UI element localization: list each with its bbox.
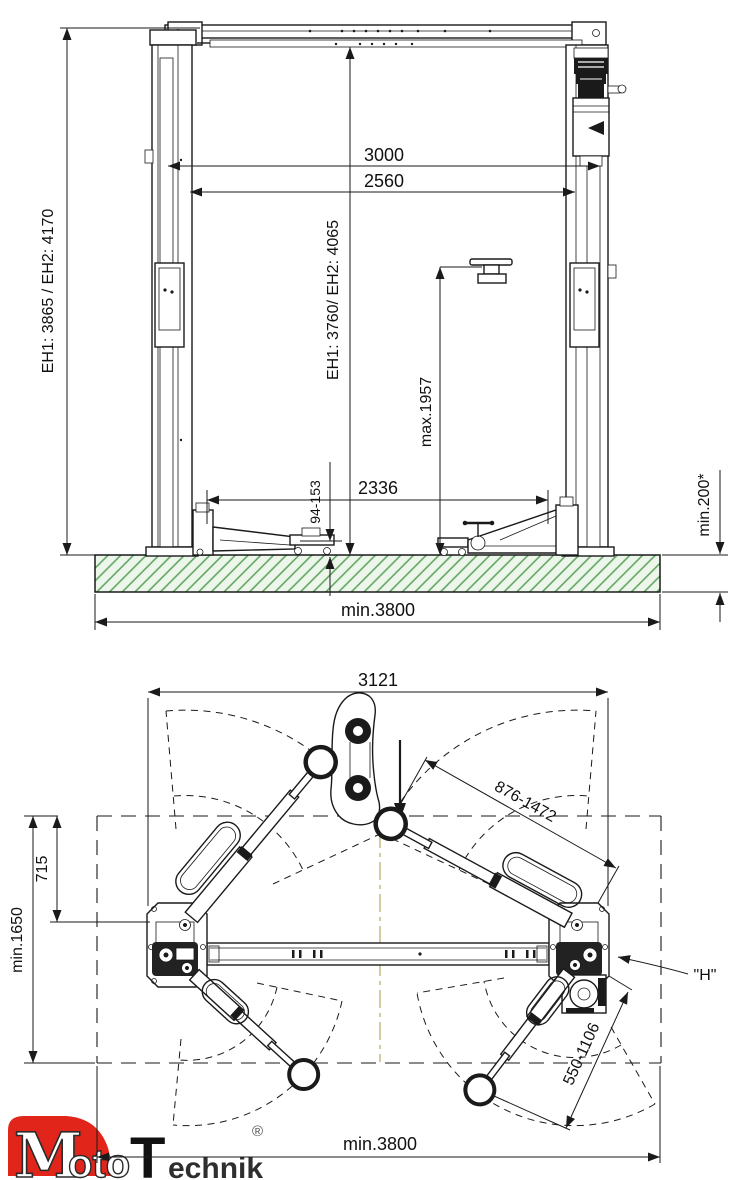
dim-short-arm-label: 550-1106 xyxy=(560,1020,603,1088)
logo-letter-t: T xyxy=(130,1126,165,1180)
dim-clear-height-label: EH1: 3760/ EH2: 4065 xyxy=(325,220,342,380)
lift-pad-adapter xyxy=(470,259,512,283)
detail-h-callout: "H" xyxy=(618,957,716,984)
dim-width-2336: 2336 xyxy=(207,478,548,524)
front-view: EH1: 3865 / EH2: 4170 EH1: 3760/ EH2: 40… xyxy=(40,22,728,630)
left-column xyxy=(145,30,198,556)
plan-view: 3121 876-1472 550-1106 715 min.1650 xyxy=(9,670,716,1130)
dim-715: 715 xyxy=(34,816,150,922)
dim-max-lift-height: max.1957 xyxy=(418,267,482,555)
dim-plan-bay-width-label: min.3800 xyxy=(343,1134,417,1154)
detail-h-label: "H" xyxy=(694,967,717,984)
logo-text-oto: oto xyxy=(68,1142,130,1180)
dim-3121: 3121 xyxy=(148,670,608,906)
hydraulic-power-unit xyxy=(573,48,626,166)
dim-pad-height-label: 94-153 xyxy=(307,480,323,524)
dim-width-2560: 2560 xyxy=(190,171,575,192)
floor-crossbeam xyxy=(207,943,549,965)
arm-upper-right xyxy=(370,785,599,941)
dim-foundation: min.200* xyxy=(662,470,728,622)
registered-trademark-icon: ® xyxy=(252,1123,263,1140)
brand-logo: M oto T echnik ® xyxy=(8,1116,263,1180)
dim-3121-label: 3121 xyxy=(358,670,398,690)
logo-text-echnik: echnik xyxy=(168,1152,263,1180)
dim-max-lift-height-label: max.1957 xyxy=(418,377,435,447)
dim-bay-depth-label: min.1650 xyxy=(9,907,26,973)
dim-width-2560-label: 2560 xyxy=(364,171,404,191)
arm-lower-left xyxy=(173,954,324,1095)
vehicle-silhouette xyxy=(331,693,380,825)
two-post-lift-technical-drawing: EH1: 3865 / EH2: 4170 EH1: 3760/ EH2: 40… xyxy=(0,0,734,1180)
dim-bay-depth: min.1650 xyxy=(9,816,95,1063)
dim-front-bay-width-label: min.3800 xyxy=(341,600,415,620)
right-arm-front xyxy=(438,497,578,556)
floor-slab xyxy=(95,555,660,592)
dim-width-3000: 3000 xyxy=(168,145,600,166)
arm-lower-right xyxy=(460,952,590,1110)
top-crossbeam xyxy=(165,22,606,47)
dim-front-bay-width: min.3800 xyxy=(95,594,660,630)
dim-foundation-label: min.200* xyxy=(696,473,713,536)
dim-clear-height: EH1: 3760/ EH2: 4065 xyxy=(325,47,350,555)
dim-total-height-label: EH1: 3865 / EH2: 4170 xyxy=(40,209,57,374)
dim-width-2336-label: 2336 xyxy=(358,478,398,498)
dim-715-label: 715 xyxy=(34,856,51,883)
dim-width-3000-label: 3000 xyxy=(364,145,404,165)
right-column xyxy=(562,45,626,556)
